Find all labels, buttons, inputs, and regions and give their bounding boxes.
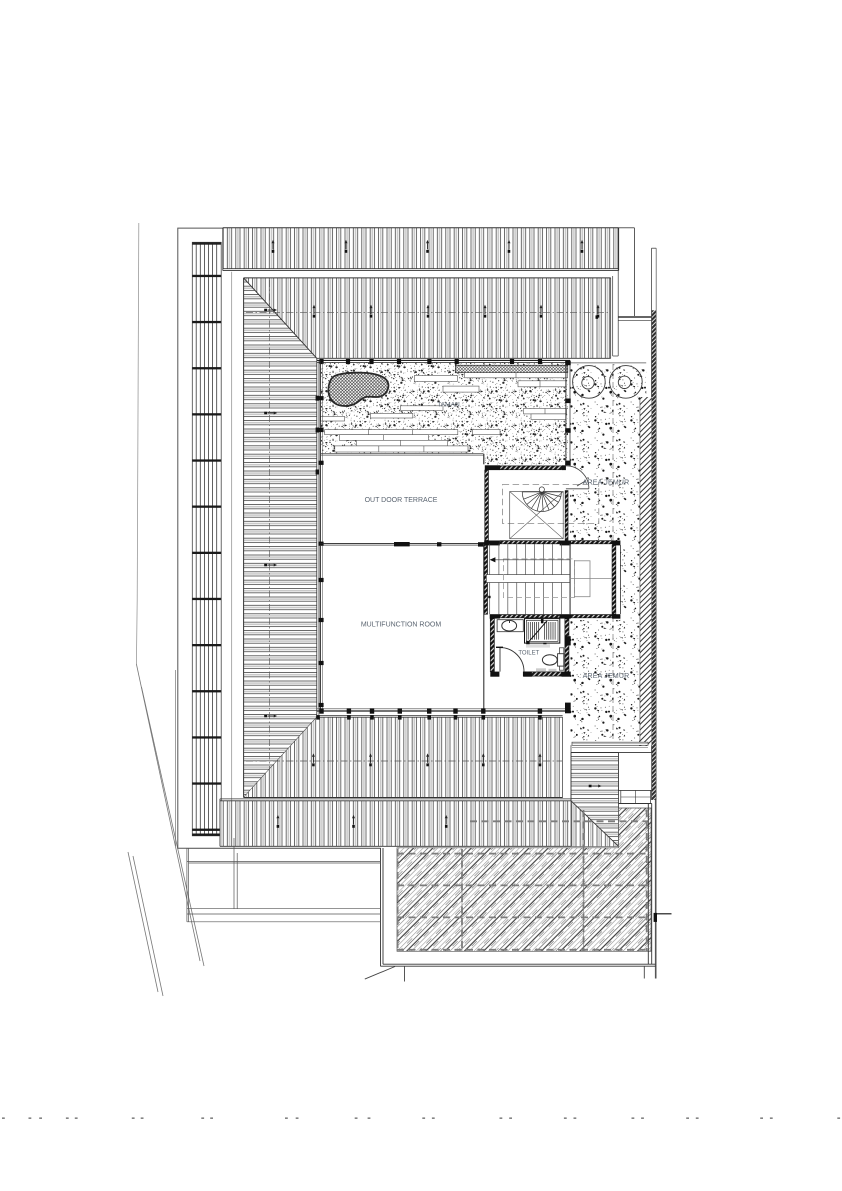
svg-text:OUT DOOR TERRACE: OUT DOOR TERRACE [365,497,438,504]
svg-text:MULTIFUNCTION ROOM: MULTIFUNCTION ROOM [361,622,442,629]
svg-text:AREA JEMUR: AREA JEMUR [583,480,630,487]
svg-text:TAMAN: TAMAN [437,401,460,408]
svg-text:TOILET: TOILET [518,651,539,657]
svg-text:AREA JEMUR: AREA JEMUR [583,673,630,680]
